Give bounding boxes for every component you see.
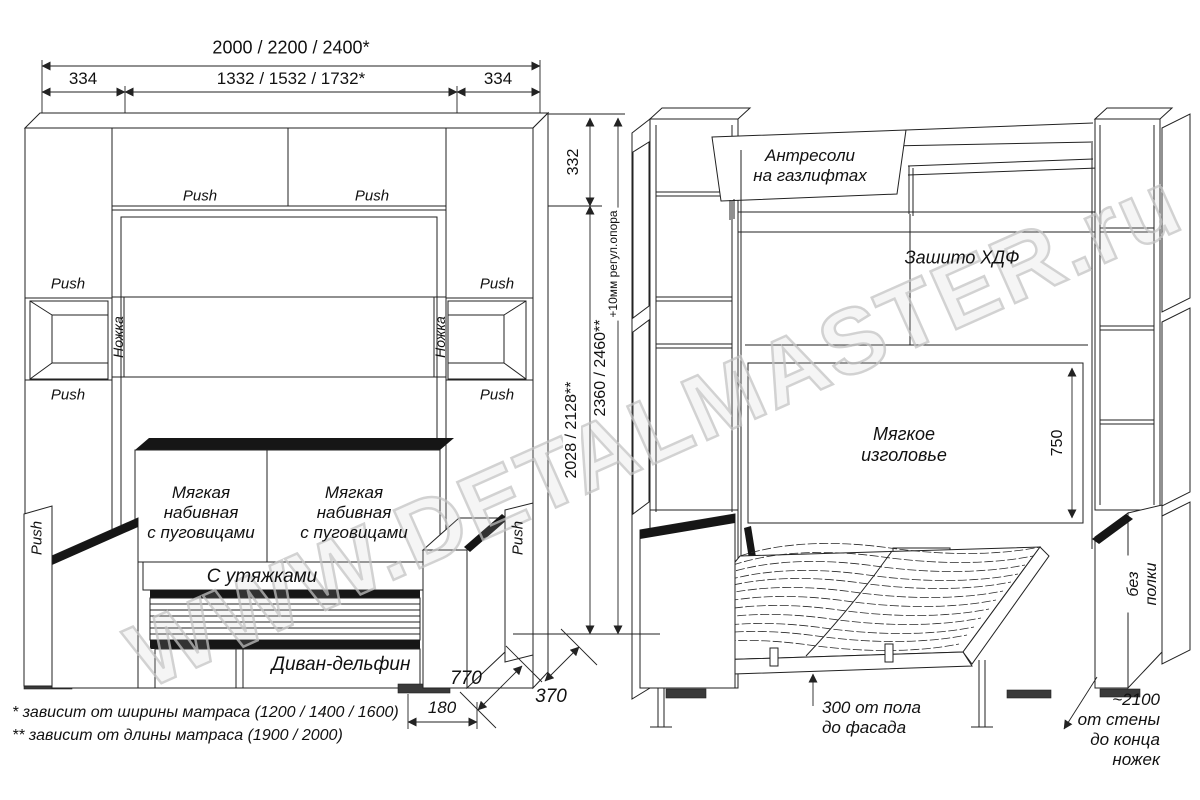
leg-label-right: Ножка <box>432 316 448 358</box>
dim-inner-width: 1332 / 1532 / 1732* <box>217 69 365 89</box>
push-label-right-end: Push <box>510 521 527 555</box>
dim-headboard-height: 750 <box>1049 430 1067 457</box>
seat-label: С утяжками <box>207 566 317 588</box>
dim-inner-height: 2028 / 2128** <box>563 379 581 482</box>
headboard-label: Мягкое изголовье <box>861 424 947 466</box>
dim-cabinet-depth: 370 <box>535 686 567 708</box>
push-label-left-column: Push <box>51 276 85 293</box>
dim-top-height: 332 <box>565 146 583 179</box>
antresol-label: Антресоли на газлифтах <box>753 146 867 186</box>
floor-clearance-label: 300 от пола до фасада <box>822 698 921 738</box>
dim-overall-width: 2000 / 2200 / 2400* <box>212 38 369 59</box>
dim-total-height: 2360 / 2460** <box>592 317 610 420</box>
sofa-type-label: Диван-дельфин <box>272 654 411 676</box>
dim-side-width-right: 334 <box>484 69 512 89</box>
footnote-length: ** зависит от длины матраса (1900 / 2000… <box>12 727 343 745</box>
leg-label-left: Ножка <box>110 316 126 358</box>
wall-distance-label: ~2100 от стены до конца ножек <box>1055 690 1160 770</box>
push-label-flap-left: Push <box>183 188 217 205</box>
footnote-width: * зависит от ширины матраса (1200 / 1400… <box>12 704 399 722</box>
push-label-right-column-lower: Push <box>480 387 514 404</box>
drawing-page: WWW.DETALMASTER.ru Push Push Push Push P… <box>0 0 1200 800</box>
push-label-right-column: Push <box>480 276 514 293</box>
dim-side-width-left: 334 <box>69 69 97 89</box>
push-label-left-column-lower: Push <box>51 387 85 404</box>
cushion-label-left: Мягкая набивная с пуговицами <box>147 483 255 543</box>
push-label-left-end: Push <box>29 521 46 555</box>
back-panel-label: Зашито ХДФ <box>905 248 1020 269</box>
cushion-label-right: Мягкая набивная с пуговицами <box>300 483 408 543</box>
dim-base-depth: 180 <box>428 698 456 718</box>
push-label-flap-right: Push <box>355 188 389 205</box>
dim-adjuster-note: +10мм регул.опора <box>606 207 620 320</box>
no-shelf-label: без полки <box>1125 556 1161 613</box>
dim-sofa-depth: 770 <box>450 668 482 690</box>
